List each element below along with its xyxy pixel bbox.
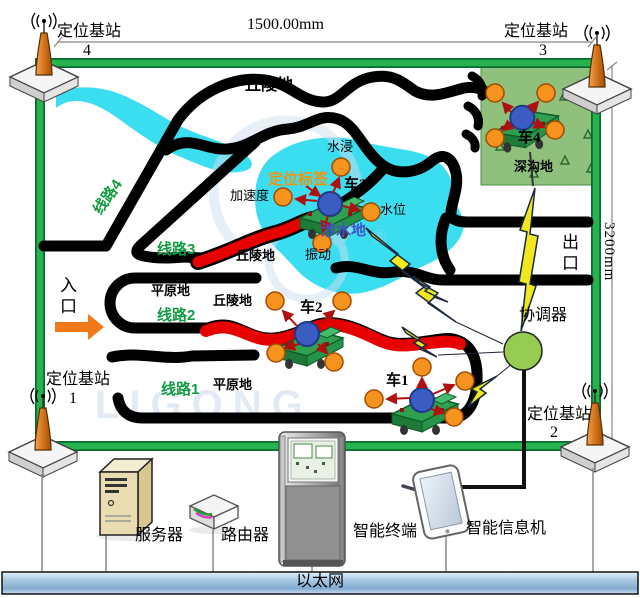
info-machine-label: 智能信息机 xyxy=(466,521,546,537)
ethernet-label: 以太网 xyxy=(296,574,344,590)
server-label: 服务器 xyxy=(135,528,183,544)
diagram-canvas: LIGONG ® xyxy=(0,0,640,598)
vehicle-3-label: 车3 xyxy=(344,178,367,193)
base-station-1-number: 1 xyxy=(69,391,77,407)
dimension-top-label: 1500.00mm xyxy=(247,17,324,33)
positioning-tag-dot xyxy=(318,192,342,216)
terrain-deep-ditch-label: 深沟地 xyxy=(514,160,553,173)
vehicle-2-label: 车2 xyxy=(300,301,323,316)
base-station-2-icon xyxy=(561,383,629,472)
entrance-label: 入口 xyxy=(58,276,75,318)
kiosk-terminal-icon xyxy=(279,432,345,566)
base-station-1-label: 定位基站 xyxy=(46,372,110,388)
base-station-1-icon xyxy=(9,388,77,477)
terrain-plain-mid-label: 平原地 xyxy=(151,284,190,297)
test-track-diagram: LIGONG ® xyxy=(0,0,640,598)
positioning-tag-dot xyxy=(295,322,319,346)
coordinator-label: 协调器 xyxy=(519,308,567,324)
base-station-3-label: 定位基站 xyxy=(504,24,568,40)
terrain-hilly-low-label: 丘陵地 xyxy=(213,294,252,307)
positioning-tag-dot xyxy=(410,388,434,412)
terrain-hilly-top-label: 丘陵地 xyxy=(245,78,293,94)
sensor-water-level-label: 水位 xyxy=(380,203,406,216)
sensor-water-immersion-label: 水浸 xyxy=(327,140,353,153)
terrain-plain-low-label: 平原地 xyxy=(213,378,252,391)
base-station-4-number: 4 xyxy=(83,43,91,59)
route-1-label: 线路1 xyxy=(161,378,199,399)
vehicle-4-label: 车4 xyxy=(518,131,541,146)
sensor-acceleration-label: 加速度 xyxy=(230,189,269,202)
route-3-label: 线路3 xyxy=(157,238,195,259)
vehicle-1-label: 车1 xyxy=(386,374,409,389)
base-station-2-number: 2 xyxy=(550,425,558,441)
terrain-hilly-mid-label: 丘陵地 xyxy=(236,249,275,262)
base-station-2-label: 定位基站 xyxy=(527,407,591,423)
router-label: 路由器 xyxy=(221,528,269,544)
base-station-4-label: 定位基站 xyxy=(57,24,121,40)
positioning-tag-label: 定位标签 xyxy=(268,168,328,189)
terminal-label: 智能终端 xyxy=(353,524,417,540)
terrain-wading-label: 涉水地 xyxy=(321,219,366,240)
dimension-right-label: 3200mm xyxy=(601,222,616,281)
exit-label: 出口 xyxy=(560,233,577,275)
route-2-label: 线路2 xyxy=(157,304,195,325)
base-station-3-number: 3 xyxy=(539,43,547,59)
sensor-vibration-label: 振动 xyxy=(305,248,331,261)
